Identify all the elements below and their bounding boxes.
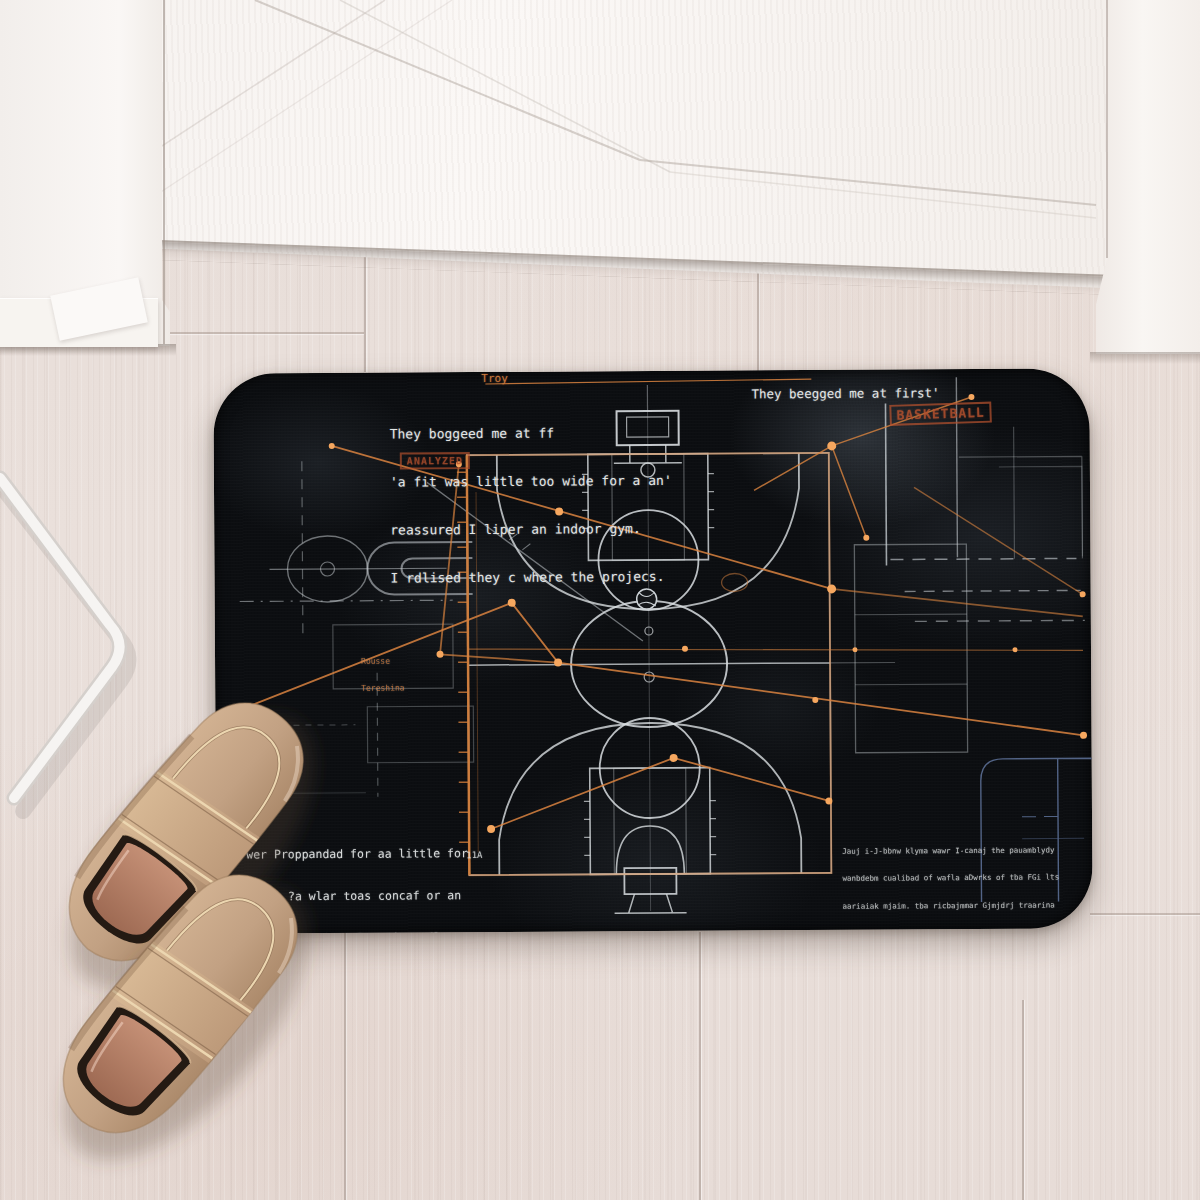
floor-seam xyxy=(699,932,701,1200)
door-frame-left-edge xyxy=(163,0,165,344)
mat-text-top-right: They beegged me at first' xyxy=(751,385,939,401)
door-frame-right-shadow xyxy=(1090,352,1200,364)
tag-11a: 11A xyxy=(466,850,482,860)
stamp-top-left: ANALYZED xyxy=(400,452,470,469)
drafting-details-right xyxy=(853,376,1085,752)
door-frame-right-edge xyxy=(1106,0,1108,258)
text-line: reassured I liper an indoor gym. xyxy=(390,521,672,539)
floor-seam xyxy=(1022,1000,1024,1200)
loafers-pair xyxy=(8,652,356,1200)
orange-note: Rousse Tereshina xyxy=(361,639,405,711)
mat-text-top-left: They boggeed me at ff 'a fit was little … xyxy=(389,393,672,619)
text-line: I rdlised they c where the projecs. xyxy=(391,569,673,587)
text-line: 'a fit was little too wide for a an' xyxy=(390,473,672,491)
mat-text-bottom-right: Jauj i-J-bbnw klyma wawr I-canaj the pau… xyxy=(842,826,1078,933)
note-line: Rousse xyxy=(361,657,404,666)
stamp-top-right: BASKETBALL xyxy=(889,402,992,426)
floor-seam xyxy=(1090,913,1200,915)
text-line: They boggeed me at ff xyxy=(390,425,672,443)
door-frame-right xyxy=(1096,0,1200,354)
text-line: Jauj i-J-bbnw klyma wawr I-canaj the pau… xyxy=(842,845,1077,856)
text-line: aariaiak mjaim. tba ricbajmmar Gjmjdrj t… xyxy=(843,901,1078,912)
entryway-scene: They boggeed me at ff 'a fit was little … xyxy=(0,0,1200,1200)
text-line: wanbdebm cualibad of wafla aDwrks of tba… xyxy=(842,873,1077,884)
note-line: Tereshina xyxy=(361,684,404,693)
door-panel-moldings xyxy=(0,0,1200,360)
troy-label: Troy xyxy=(481,372,508,385)
